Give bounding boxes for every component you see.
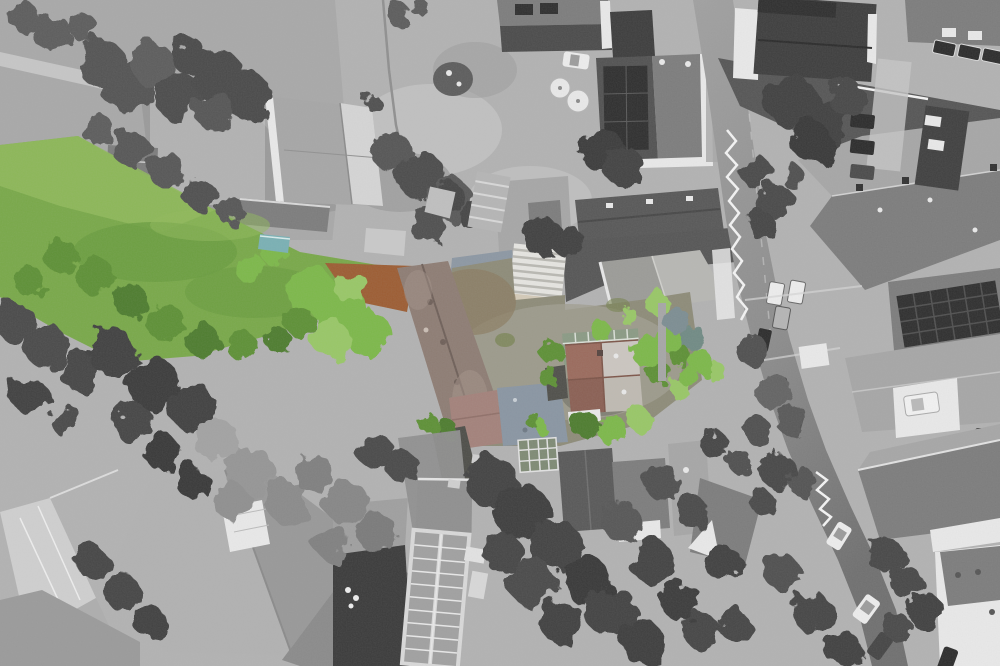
aerial-photo bbox=[0, 0, 1000, 666]
aerial-photo-canvas bbox=[0, 0, 1000, 666]
photo-grain-overlay bbox=[0, 0, 1000, 666]
